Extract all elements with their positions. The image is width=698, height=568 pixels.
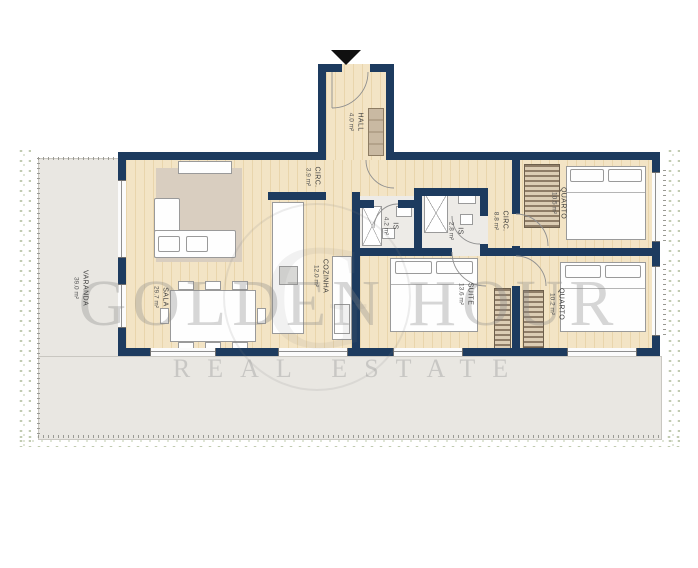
suite-door-arc: [452, 252, 486, 286]
room-label-quarto-top: QUARTO 10.5 m²: [550, 187, 567, 219]
entrance-door-arc: [332, 72, 368, 108]
room-label-is-main: IS 4.2 m²: [382, 217, 399, 235]
room-label-circ-top: CIRC. 3.9 m²: [304, 166, 321, 187]
room-label-is-suite: IS 2.8 m²: [447, 222, 464, 240]
door-arcs: [0, 0, 698, 568]
room-label-cozinha: COZINHA 12.0 m²: [312, 259, 329, 293]
room-label-suite: SUITE 13.6 m²: [457, 283, 474, 306]
entrance-arrow: [331, 50, 361, 65]
hall-door-arc: [366, 160, 394, 188]
room-label-quarto-bottom: QUARTO 10.2 m²: [548, 288, 565, 320]
bedroom-bottom-door-arc: [516, 256, 546, 286]
room-label-varanda: VARANDA 39.0 m²: [72, 270, 89, 306]
room-label-hall: HALL 4.0 m²: [347, 112, 364, 131]
room-label-sala: SALA 29.7 m²: [152, 286, 169, 308]
bedroom-top-door-arc: [516, 214, 548, 246]
room-label-circ-bed: CIRC. 8.8 m²: [492, 210, 509, 231]
floor-plan-canvas: SALA 29.7 m² CIRC. 3.9 m² COZINHA 12.0 m…: [0, 0, 698, 568]
